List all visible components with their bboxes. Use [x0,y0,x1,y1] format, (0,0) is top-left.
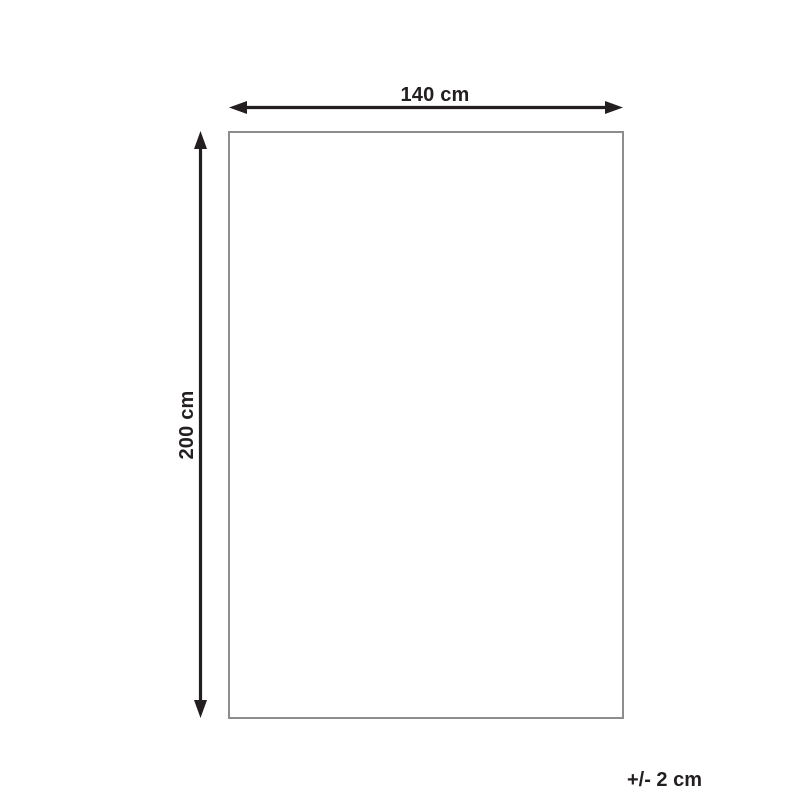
tolerance-label: +/- 2 cm [627,769,702,791]
width-arrowhead-right-icon [605,101,623,114]
height-arrowhead-bottom-icon [194,700,207,718]
dimension-diagram-canvas: 140 cm 200 cm +/- 2 cm [0,0,800,800]
width-arrowhead-left-icon [229,101,247,114]
dimension-diagram: 140 cm 200 cm +/- 2 cm [0,0,800,800]
height-arrowhead-top-icon [194,131,207,149]
product-outline-rectangle [229,132,623,718]
height-dimension-label: 200 cm [176,390,198,459]
width-dimension-label: 140 cm [400,84,469,106]
